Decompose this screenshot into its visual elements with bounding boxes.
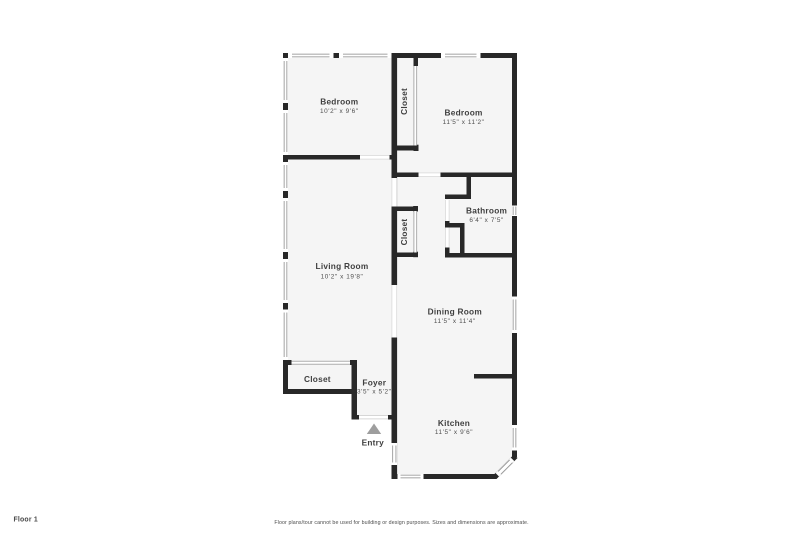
svg-text:Entry: Entry xyxy=(362,437,385,447)
svg-text:Dining Room: Dining Room xyxy=(428,306,482,316)
svg-text:Bedroom: Bedroom xyxy=(320,96,358,106)
svg-text:10'2" x 9'6": 10'2" x 9'6" xyxy=(320,108,359,115)
svg-text:11'5" x 11'2": 11'5" x 11'2" xyxy=(443,119,485,126)
svg-text:Closet: Closet xyxy=(399,219,409,246)
svg-text:Floor 1: Floor 1 xyxy=(14,517,38,524)
svg-text:Bedroom: Bedroom xyxy=(445,107,483,117)
svg-text:Kitchen: Kitchen xyxy=(438,418,470,428)
svg-text:11'5" x 9'6": 11'5" x 9'6" xyxy=(435,429,473,436)
svg-text:Living Room: Living Room xyxy=(316,261,369,271)
svg-text:6'4" x 7'5": 6'4" x 7'5" xyxy=(469,217,504,224)
svg-text:Floor plans/tour cannot be use: Floor plans/tour cannot be used for buil… xyxy=(274,520,528,526)
svg-text:Foyer: Foyer xyxy=(362,377,386,387)
svg-text:11'5" x 11'4": 11'5" x 11'4" xyxy=(434,318,476,325)
svg-text:Closet: Closet xyxy=(399,88,409,115)
svg-text:3'5" x 5'2": 3'5" x 5'2" xyxy=(357,389,392,396)
svg-text:Bathroom: Bathroom xyxy=(466,206,507,216)
svg-text:Closet: Closet xyxy=(304,374,331,384)
svg-text:10'2" x 19'8": 10'2" x 19'8" xyxy=(321,274,364,281)
